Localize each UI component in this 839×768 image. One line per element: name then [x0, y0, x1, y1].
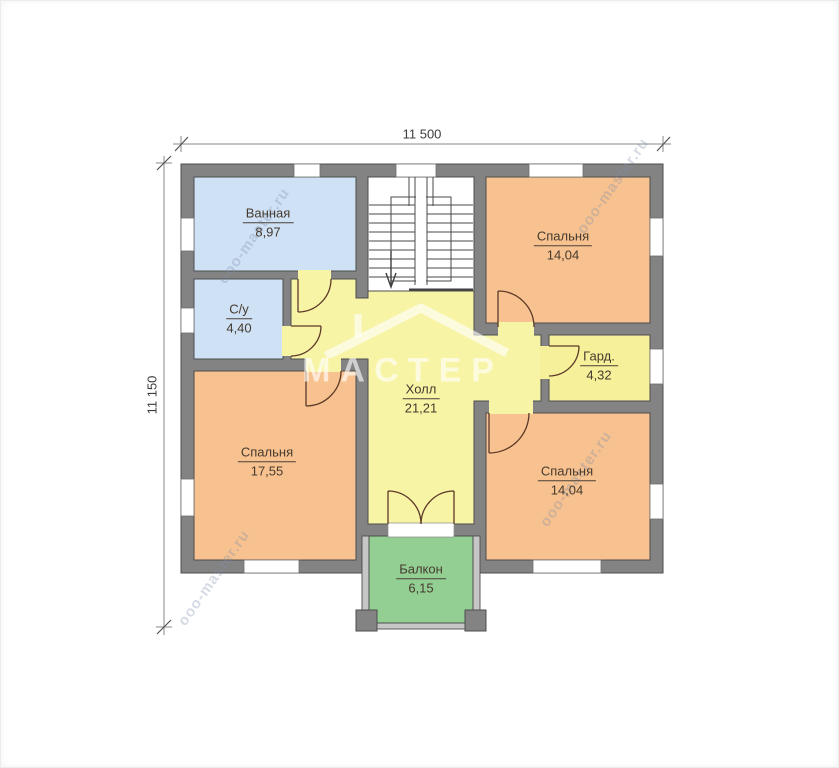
door-opening-bedroom-bottom-right	[489, 400, 533, 414]
balcony-post-right	[465, 610, 486, 631]
room-name: Спальня	[238, 444, 296, 462]
room-name: Гард.	[580, 348, 618, 366]
room-name: Спальня	[534, 228, 592, 246]
dimension-label-top: 11 500	[403, 127, 442, 142]
room-area: 14,04	[538, 482, 596, 499]
dimension-label-left: 11 150	[145, 376, 160, 415]
room-area: 8,97	[243, 224, 294, 241]
window-right-bedroom-top	[650, 218, 663, 256]
window-right-wardrobe	[650, 349, 663, 384]
room-name: С/у	[226, 301, 252, 319]
room-name: Спальня	[538, 463, 596, 481]
room-area: 21,21	[403, 400, 440, 417]
room-name: Балкон	[396, 561, 446, 579]
room-label-hall: Холл 21,21	[403, 381, 440, 417]
floor-plan-canvas: МАСТЕР ooo-master.ru ooo-master.ru ooo-m…	[0, 0, 839, 768]
room-label-wc: С/у 4,40	[226, 301, 252, 337]
balcony-post-left	[356, 610, 377, 631]
window-right-bedroom-bottom	[650, 484, 663, 519]
room-area: 14,04	[534, 247, 592, 264]
stairs-center-stringer	[416, 178, 426, 285]
room-area: 6,15	[396, 580, 446, 597]
door-opening-balcony	[388, 523, 454, 537]
door-opening-wc	[282, 326, 292, 356]
room-area: 4,32	[580, 367, 618, 384]
window-left-bathroom	[181, 218, 194, 251]
window-bottom-bedroom-left	[244, 560, 299, 573]
window-bottom-bedroom-right	[533, 560, 601, 573]
window-top-bedroom	[529, 164, 583, 177]
door-opening-bathroom	[298, 270, 331, 280]
door-opening-wardrobe	[540, 346, 550, 379]
room-area: 4,40	[226, 320, 252, 337]
window-top-bathroom	[294, 164, 320, 177]
room-label-wardrobe: Гард. 4,32	[580, 348, 618, 384]
room-label-balcony: Балкон 6,15	[396, 561, 446, 597]
door-opening-bedroom-top-right	[498, 322, 534, 336]
room-name: Ванная	[243, 205, 294, 223]
room-name: Холл	[403, 381, 440, 399]
window-left-wc	[181, 308, 194, 333]
room-area: 17,55	[238, 463, 296, 480]
window-top-stairwell	[396, 164, 436, 177]
room-label-bedroom-top-right: Спальня 14,04	[534, 228, 592, 264]
window-left-bedroom	[181, 479, 194, 516]
room-label-bathroom: Ванная 8,97	[243, 205, 294, 241]
room-label-bedroom-left: Спальня 17,55	[238, 444, 296, 480]
room-label-bedroom-bottom-right: Спальня 14,04	[538, 463, 596, 499]
